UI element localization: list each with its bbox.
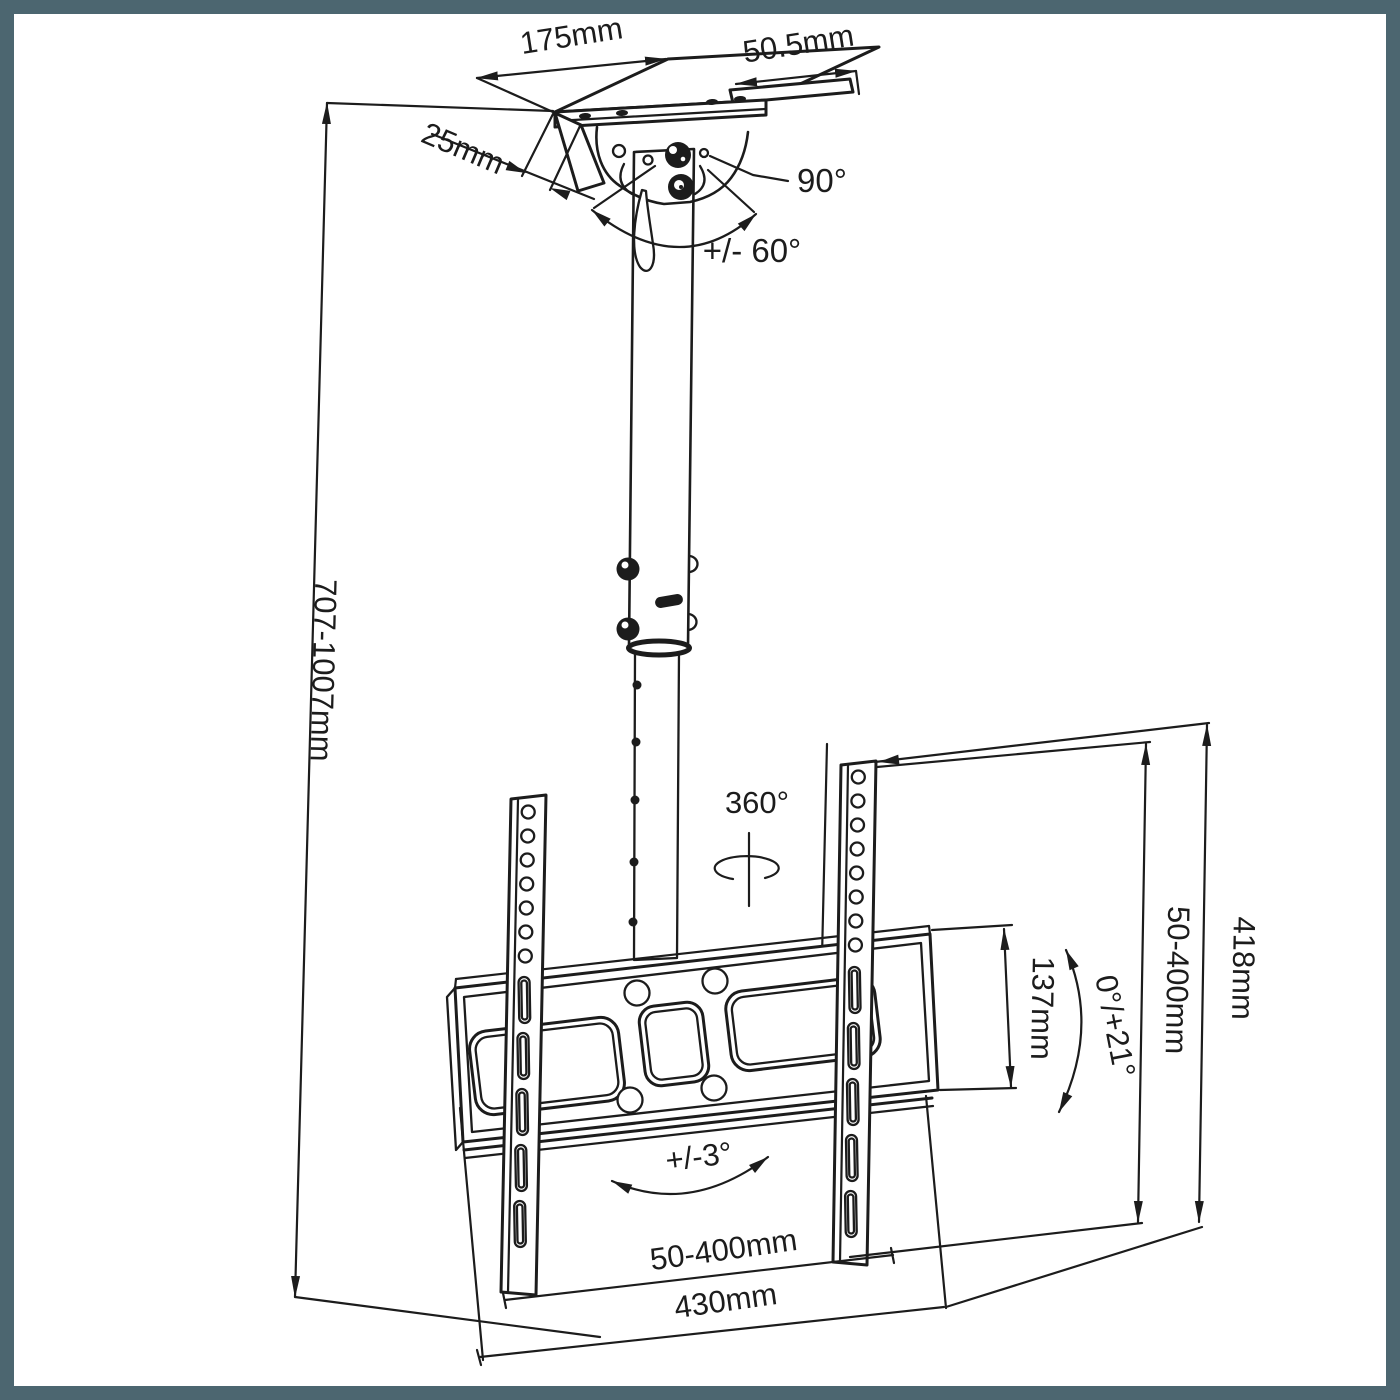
dim-vesa-vertical-label: 50-400mm [1159,906,1197,1055]
pivot-bolt-upper [665,142,691,168]
dim-bracket-height-label: 418mm [1225,916,1262,1020]
technical-drawing: 175mm 50.5mm 25mm 90° +/- 60° 707-1007mm [0,0,1400,1400]
diagram-frame: 175mm 50.5mm 25mm 90° +/- 60° 707-1007mm [0,0,1400,1400]
drawing-canvas [14,14,1386,1386]
vesa-cutout-middle [637,1000,710,1087]
rotation-label: 360° [725,785,789,820]
dim-plate-height-label: 137mm [1024,956,1061,1060]
tilt-range-label: +/- 60° [703,232,802,269]
right-vesa-rail [833,761,876,1265]
pole-knob [617,618,640,641]
dim-pole-height-label: 707-1007mm [304,579,344,763]
swivel-angle-label: 90° [797,162,847,199]
pivot-bolt-lower [668,174,694,200]
pole-knob [617,558,640,581]
pole-collar [629,641,690,655]
vesa-cutout-left [468,1015,627,1116]
